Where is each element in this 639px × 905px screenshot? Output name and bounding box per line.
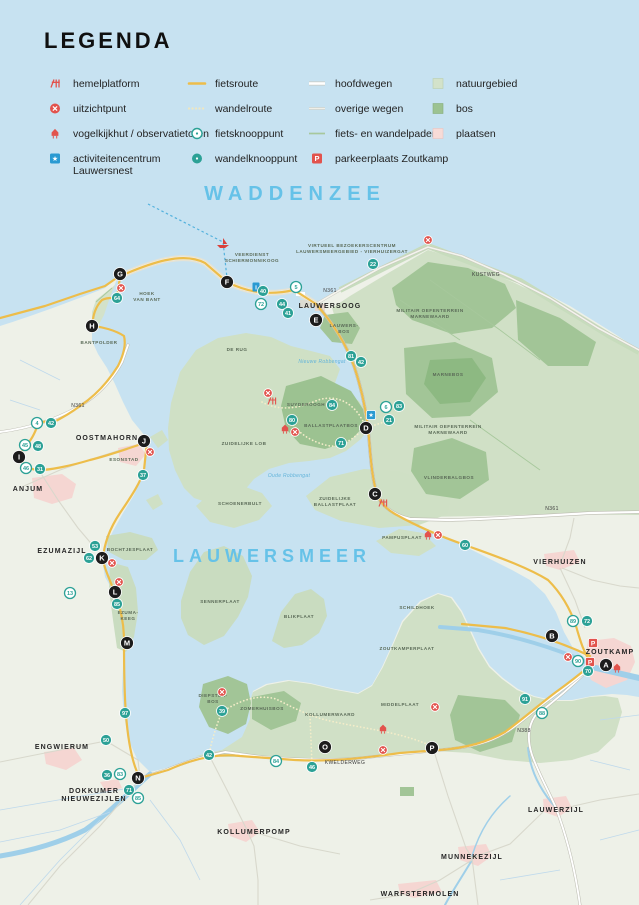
legend-item: fietsroute: [186, 76, 297, 101]
svg-text:97: 97: [122, 711, 128, 717]
legend-item: wandelknooppunt: [186, 151, 297, 176]
svg-text:46: 46: [309, 765, 315, 771]
svg-text:D: D: [363, 424, 369, 433]
svg-text:64: 64: [114, 296, 121, 302]
water-label: LAUWERSMEER: [173, 546, 371, 566]
area-label: SCHIERMONNIKOOG: [225, 258, 279, 263]
fietsknooppunt-84: 84: [271, 756, 282, 767]
wandelknooppunt-70: 70: [583, 666, 594, 677]
wandelknooppunt-46: 46: [307, 762, 318, 773]
svg-text:K: K: [99, 554, 105, 563]
route-marker-J: J: [138, 435, 151, 448]
uitzichtpunt-icon: [291, 428, 300, 437]
area-label: LAUWERS-: [330, 323, 359, 328]
fietsknooppunt-83: 83: [115, 769, 126, 780]
fietsknooppunt-72: 72: [256, 299, 267, 310]
area-label: ZUIDELIJKE: [319, 496, 351, 501]
wandelknooppunt-97: 97: [120, 708, 131, 719]
route-marker-B: B: [546, 630, 559, 643]
wandelknooppunt-83: 83: [394, 401, 405, 412]
uitzichtpunt-icon: [108, 559, 117, 568]
wandelknooppunt-71: 71: [336, 438, 347, 449]
place-label: NIEUWEZIJLEN: [61, 796, 126, 803]
svg-text:40: 40: [260, 289, 266, 295]
place-label: ZOUTKAMP: [586, 649, 634, 656]
svg-text:45: 45: [22, 443, 28, 449]
svg-text:85: 85: [114, 602, 120, 608]
legend-title: LEGENDA: [44, 28, 173, 54]
wandelknooppunt-42: 42: [356, 357, 367, 368]
legend-item-label: uitzichtpunt: [73, 101, 126, 115]
legend-item-label: wandelknooppunt: [215, 151, 297, 165]
uitzichtpunt-icon: [146, 448, 155, 457]
legend-item-label: activiteitencentrumLauwersnest: [73, 151, 161, 177]
legend-item: wandelroute: [186, 101, 297, 126]
svg-text:★: ★: [368, 412, 373, 419]
legend-item-label: overige wegen: [335, 101, 403, 115]
wandelknooppunt-48: 48: [33, 441, 44, 452]
svg-text:42: 42: [48, 421, 54, 427]
uitzichtpunt-icon: [424, 236, 433, 245]
place-label: ANJUM: [13, 486, 43, 493]
wandelknooppunt-60: 60: [460, 540, 471, 551]
svg-text:41: 41: [285, 311, 291, 317]
wandelknooppunt-42: 42: [46, 418, 57, 429]
route-marker-O: O: [319, 741, 332, 754]
area-label: KEEG: [120, 616, 135, 621]
wandelknooppunt-80: 80: [287, 415, 298, 426]
parkeerplaats-icon: P: [589, 639, 598, 648]
road-label: KWELDERWEG: [325, 760, 366, 766]
road-label: N361: [323, 288, 337, 294]
legend-item-label: hemelplatform: [73, 76, 140, 90]
svg-text:71: 71: [126, 788, 132, 794]
area-label: BANTPOLDER: [81, 340, 118, 345]
uitzichtpunt-icon: [434, 531, 443, 540]
wandelknooppunt-37: 37: [138, 470, 149, 481]
wandelknooppunt-22: 22: [368, 259, 379, 270]
route-marker-P: P: [426, 742, 439, 755]
svg-text:48: 48: [35, 444, 41, 450]
svg-text:89: 89: [570, 619, 576, 625]
area-label: DE RUG: [227, 347, 248, 352]
area-label: ZOUTKAMPERPLAAT: [380, 646, 435, 651]
place-label: ENGWIERUM: [35, 744, 89, 751]
legend-item-label: fietsknooppunt: [215, 126, 283, 140]
area-label: PAMPUSPLAAT: [382, 535, 422, 540]
svg-text:42: 42: [206, 753, 212, 759]
wandelknooppunt-81: 81: [346, 351, 357, 362]
route-marker-D: D: [360, 422, 373, 435]
wandelknooppunt-84: 84: [327, 400, 338, 411]
area-label: VEERDIENST: [235, 252, 269, 257]
svg-text:50: 50: [103, 738, 109, 744]
fietsroute-icon: [186, 76, 208, 91]
svg-text:85: 85: [135, 796, 141, 802]
area-label: MIDDELPLAAT: [381, 702, 419, 707]
fietsknooppunt-90: 90: [573, 656, 584, 667]
fietsknooppunt-13: 13: [65, 588, 76, 599]
svg-text:13: 13: [67, 591, 73, 597]
route-marker-F: F: [221, 276, 234, 289]
parkeerplaats-icon: P: [306, 151, 328, 166]
water-label: WADDENZEE: [204, 183, 386, 205]
uitzichtpunt-icon: [44, 101, 66, 116]
hoofdwegen-icon: [306, 76, 328, 91]
legend-item-label: natuurgebied: [456, 76, 517, 90]
svg-text:F: F: [225, 278, 230, 287]
legend-item-label: bos: [456, 101, 473, 115]
legend-item-label: plaatsen: [456, 126, 496, 140]
svg-text:88: 88: [539, 711, 545, 717]
svg-text:P: P: [429, 744, 434, 753]
route-marker-N: N: [132, 772, 145, 785]
svg-text:H: H: [89, 322, 94, 331]
road-label: N388: [517, 728, 531, 734]
wandelknooppunt-31: 31: [35, 464, 46, 475]
svg-text:31: 31: [37, 467, 43, 473]
legend-item: vogelkijkhut / observatietoren: [44, 126, 209, 151]
area-label: HOEK: [139, 291, 154, 296]
area-label: BLIKPLAAT: [284, 614, 314, 619]
area-label: LAUWERSMEERGEBIED - VIERHUIZERGAT: [296, 249, 408, 254]
fiets-wandelpaden-icon: [306, 126, 328, 141]
route-marker-H: H: [86, 320, 99, 333]
wandelknooppunt-39: 39: [217, 706, 228, 717]
vogelkijkhut-icon: [44, 126, 66, 141]
fietsknooppunt-6: 6: [381, 402, 392, 413]
area-label: SCHOENERBULT: [218, 501, 262, 506]
road-label: N361: [71, 403, 85, 409]
fietsknooppunt-4: 4: [32, 418, 43, 429]
svg-text:E: E: [313, 316, 318, 325]
place-label: KOLLUMERPOMP: [217, 829, 290, 836]
svg-text:P: P: [314, 154, 319, 163]
area-label: MARNEBOS: [433, 372, 464, 377]
legend-column-1: hemelplatformuitzichtpuntvogelkijkhut / …: [44, 76, 209, 176]
uitzichtpunt-icon: [564, 653, 573, 662]
svg-text:80: 80: [289, 418, 295, 424]
svg-text:N: N: [135, 774, 140, 783]
legend-item-label: wandelroute: [215, 101, 272, 115]
legend-item: hemelplatform: [44, 76, 209, 101]
svg-text:6: 6: [384, 405, 387, 411]
wandelknooppunt-36: 36: [102, 770, 113, 781]
wandelknooppunt-64: 64: [112, 293, 123, 304]
bos-icon: [427, 101, 449, 116]
svg-text:O: O: [322, 743, 328, 752]
legend-column-4: natuurgebiedbosplaatsen: [427, 76, 517, 151]
area-label: SUYDEROOGH: [287, 402, 325, 407]
natuurgebied-icon: [427, 76, 449, 91]
road-label: KUSTWEG: [472, 272, 500, 278]
svg-text:53: 53: [92, 544, 98, 550]
area-label: VIRTUEEL BEZOEKERSCENTRUM: [308, 243, 396, 248]
legend-item-label: hoofdwegen: [335, 76, 392, 90]
svg-text:60: 60: [462, 543, 468, 549]
area-label: BALLASTPLAAT: [314, 502, 356, 507]
svg-text:90: 90: [575, 659, 581, 665]
water-label: Oude Robbengat: [268, 473, 311, 479]
area-label: ZOMERHUISBOS: [240, 706, 284, 711]
svg-text:83: 83: [396, 404, 402, 410]
uitzichtpunt-icon: [218, 688, 227, 697]
fietsknooppunt-89: 89: [568, 616, 579, 627]
road-label: N361: [545, 506, 559, 512]
svg-text:B: B: [549, 632, 555, 641]
fietsknooppunt-85: 85: [133, 793, 144, 804]
wandelknooppunt-71: 71: [124, 785, 135, 796]
legend-item: uitzichtpunt: [44, 101, 209, 126]
legend-item: natuurgebied: [427, 76, 517, 101]
legend-item: bos: [427, 101, 517, 126]
wandelknooppunt-50: 50: [101, 735, 112, 746]
svg-text:36: 36: [104, 773, 110, 779]
area-label: ZUIDELIJKE LOB: [222, 441, 267, 446]
svg-text:37: 37: [140, 473, 146, 479]
area-label: SENNERPLAAT: [200, 599, 240, 604]
fietsknooppunt-icon: [186, 126, 208, 141]
svg-text:91: 91: [522, 697, 528, 703]
svg-text:M: M: [124, 639, 130, 648]
svg-text:G: G: [117, 270, 123, 279]
area-label: BOS: [338, 329, 349, 334]
wandelknooppunt-53: 53: [90, 541, 101, 552]
route-marker-C: C: [369, 488, 382, 501]
wandelknooppunt-icon: [186, 151, 208, 166]
wandelknooppunt-85: 85: [112, 599, 123, 610]
svg-text:A: A: [603, 661, 609, 670]
svg-text:70: 70: [585, 669, 591, 675]
svg-text:i: i: [255, 284, 257, 291]
area-label: MILITAIR OEFENTERREIN: [396, 308, 464, 313]
area-label: KOLLUMERWAARD: [305, 712, 355, 717]
svg-text:84: 84: [273, 759, 280, 765]
area-label: BOCHTJESPLAAT: [107, 547, 153, 552]
area-label: MARNEWAARD: [410, 314, 449, 319]
wandelknooppunt-40: 40: [258, 286, 269, 297]
area-label: BOS: [207, 699, 218, 704]
route-marker-M: M: [121, 637, 134, 650]
svg-text:P: P: [591, 640, 596, 647]
area-label: ESONSTAD: [109, 457, 138, 462]
uitzichtpunt-icon: [117, 284, 126, 293]
svg-text:72: 72: [584, 619, 590, 625]
area-label: BALLASTPLAATBOS: [304, 423, 358, 428]
legend-item: ★activiteitencentrumLauwersnest: [44, 151, 209, 176]
fietsknooppunt-5: 5: [291, 282, 302, 293]
svg-text:81: 81: [348, 354, 354, 360]
legend-item: fietsknooppunt: [186, 126, 297, 151]
place-label: WARFSTERMOLEN: [381, 891, 460, 898]
wandelknooppunt-41: 41: [283, 308, 294, 319]
svg-text:C: C: [372, 490, 378, 499]
svg-text:5: 5: [294, 285, 297, 291]
svg-text:46: 46: [23, 466, 29, 472]
route-marker-K: K: [96, 552, 109, 565]
svg-text:62: 62: [86, 556, 92, 562]
area-label: VLINDERBALGBOS: [424, 475, 474, 480]
uitzichtpunt-icon: [264, 389, 273, 398]
legend-item: Pparkeerplaats Zoutkamp: [306, 151, 448, 176]
fietsknooppunt-88: 88: [537, 708, 548, 719]
activiteitencentrum-icon: ★: [367, 411, 376, 420]
svg-text:83: 83: [117, 772, 123, 778]
place-label: DOKKUMER: [69, 788, 119, 795]
overige-wegen-icon: [306, 101, 328, 116]
legend-item-label: parkeerplaats Zoutkamp: [335, 151, 448, 165]
fietsknooppunt-45: 45: [20, 440, 31, 451]
area-label: MILITAIR OEFENTERREIN: [414, 424, 482, 429]
hemelplatform-icon: [44, 76, 66, 91]
activiteitencentrum-icon: ★: [44, 151, 66, 166]
svg-text:71: 71: [338, 441, 344, 447]
svg-text:39: 39: [219, 709, 225, 715]
svg-text:J: J: [142, 437, 146, 446]
parkeerplaats-icon: P: [586, 658, 595, 667]
fietsknooppunt-46: 46: [21, 463, 32, 474]
place-label: OOSTMAHORN: [76, 435, 138, 442]
plaatsen-icon: [427, 126, 449, 141]
uitzichtpunt-icon: [379, 746, 388, 755]
legend-item-label: fiets- en wandelpaden: [335, 126, 438, 140]
wandelknooppunt-42: 42: [204, 750, 215, 761]
route-marker-A: A: [600, 659, 613, 672]
svg-text:72: 72: [258, 302, 264, 308]
uitzichtpunt-icon: [115, 578, 124, 587]
area-label: SCHILDHOEK: [399, 605, 435, 610]
place-label: MUNNEKEZIJL: [441, 854, 503, 861]
wandelroute-icon: [186, 101, 208, 116]
svg-text:44: 44: [279, 302, 286, 308]
legend-item-label: fietsroute: [215, 76, 258, 90]
route-marker-I: I: [13, 451, 26, 464]
area-label: VAN BANT: [133, 297, 160, 302]
place-label: VIERHUIZEN: [533, 559, 586, 566]
wandelknooppunt-91: 91: [520, 694, 531, 705]
route-marker-L: L: [109, 586, 122, 599]
place-label: LAUWERSOOG: [299, 303, 362, 310]
svg-text:22: 22: [370, 262, 376, 268]
place-label: EZUMAZIJL: [37, 548, 86, 555]
legend-column-2: fietsroutewandelroutefietsknooppuntwande…: [186, 76, 297, 176]
area-label: EZUMA-: [118, 610, 139, 615]
legend-item: plaatsen: [427, 126, 517, 151]
svg-text:21: 21: [386, 418, 392, 424]
place-label: LAUWERZIJL: [528, 807, 584, 814]
wandelknooppunt-72: 72: [582, 616, 593, 627]
svg-text:I: I: [18, 453, 20, 462]
svg-text:84: 84: [329, 403, 336, 409]
route-marker-E: E: [310, 314, 323, 327]
svg-text:L: L: [113, 588, 118, 597]
area-label: MARNEWAARD: [428, 430, 467, 435]
route-marker-G: G: [114, 268, 127, 281]
water-label: Nieuwe Robbengat: [298, 359, 346, 365]
wandelknooppunt-62: 62: [84, 553, 95, 564]
wandelknooppunt-21: 21: [384, 415, 395, 426]
svg-text:42: 42: [358, 360, 364, 366]
uitzichtpunt-icon: [431, 703, 440, 712]
svg-text:★: ★: [52, 155, 58, 163]
